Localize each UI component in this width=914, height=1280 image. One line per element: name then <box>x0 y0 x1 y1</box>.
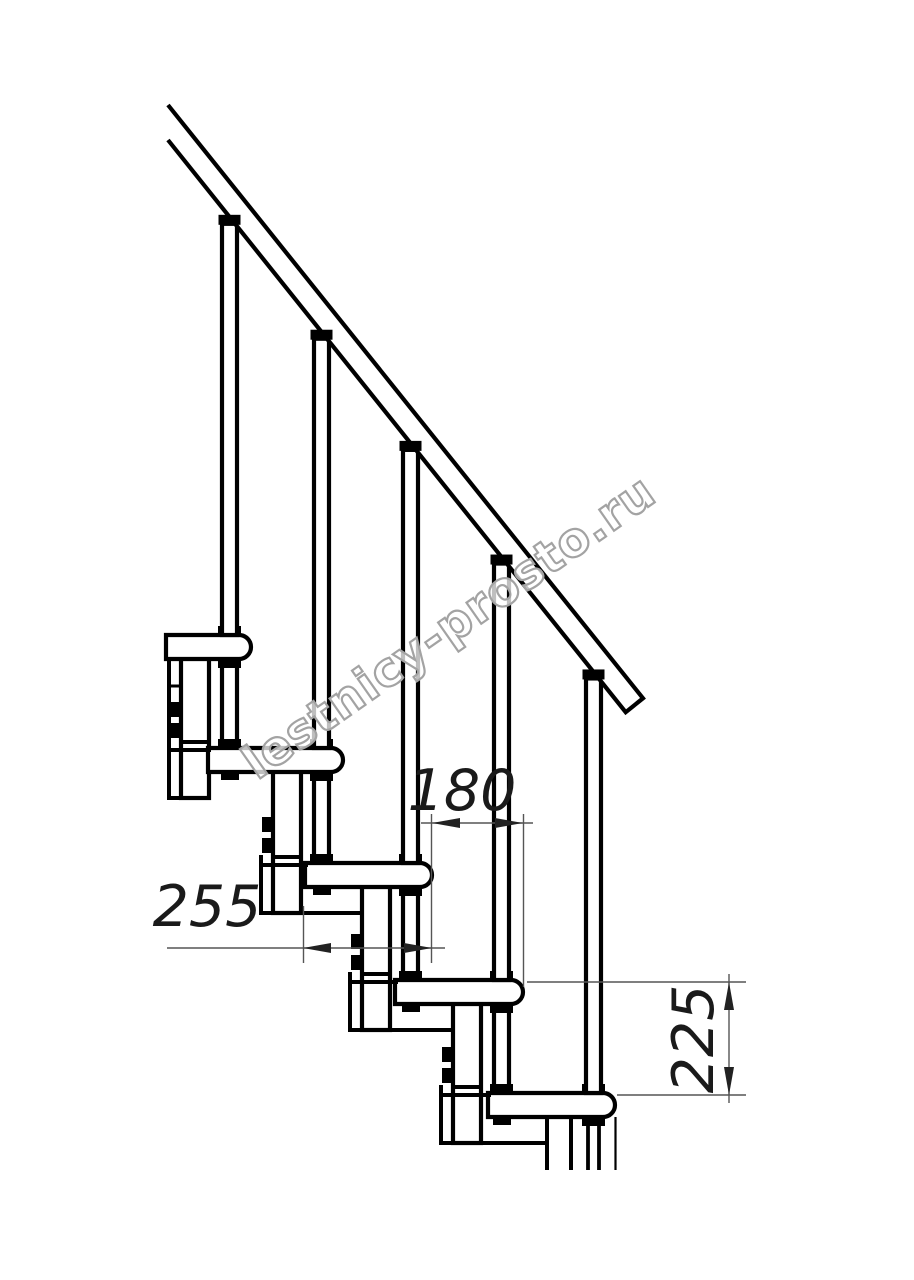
rod-bottom-connector-4 <box>490 1084 513 1093</box>
clamp-bolt-4b <box>443 1069 452 1082</box>
arrow-left-icon <box>303 943 331 953</box>
drawing-page: 180 255 225 lestnicy-prosto.ru <box>0 0 914 1280</box>
rod-bottom-connector-2 <box>310 854 333 863</box>
baluster-rail-connector-3 <box>400 441 422 451</box>
rod-top-connector-4 <box>490 1004 513 1013</box>
bolt-under-tread-3 <box>313 887 331 895</box>
baluster-rail-connector-1 <box>219 215 241 225</box>
tread-3 <box>305 863 432 887</box>
support-rod-2 <box>314 770 329 863</box>
rod-bottom-connector-3 <box>399 971 422 980</box>
support-column-4 <box>453 1002 481 1143</box>
baluster-1 <box>222 224 237 635</box>
dimension-label-180: 180 <box>408 758 517 824</box>
staircase-technical-drawing: 180 255 225 lestnicy-prosto.ru <box>0 0 914 1280</box>
clamp-bolt-3a <box>352 935 361 948</box>
support-column-3 <box>362 885 390 1030</box>
bolt-under-tread-5 <box>493 1117 511 1125</box>
support-column-1 <box>181 657 209 798</box>
support-column-2 <box>273 770 301 913</box>
baluster-5 <box>586 678 601 1093</box>
bolt-under-tread-2 <box>221 772 239 780</box>
clamp-bolt-1a <box>171 703 180 716</box>
clamp-bolt-3b <box>352 956 361 969</box>
dimension-label-225: 225 <box>661 985 727 1094</box>
support-rod-1 <box>222 657 237 748</box>
tread-4 <box>395 980 523 1004</box>
support-rod-4 <box>494 1002 509 1093</box>
rod-top-connector-5 <box>582 1117 605 1126</box>
rod-top-connector-2 <box>310 772 333 781</box>
support-rod-3 <box>403 885 418 980</box>
clamp-bolt-2a <box>263 818 272 831</box>
rod-top-connector-3 <box>399 887 422 896</box>
baluster-rail-connector-2 <box>311 330 333 340</box>
dimension-label-255: 255 <box>153 874 262 940</box>
tread-1 <box>166 635 251 659</box>
dimension-riser-height: 225 <box>527 974 746 1103</box>
rod-top-connector-1 <box>218 659 241 668</box>
baluster-rail-connector-5 <box>583 669 605 679</box>
tread-5 <box>488 1093 615 1117</box>
clamp-bolt-4a <box>443 1048 452 1061</box>
clamp-bolt-1b <box>171 724 180 737</box>
bolt-under-tread-4 <box>402 1004 420 1012</box>
clamp-bolt-2b <box>263 839 272 852</box>
